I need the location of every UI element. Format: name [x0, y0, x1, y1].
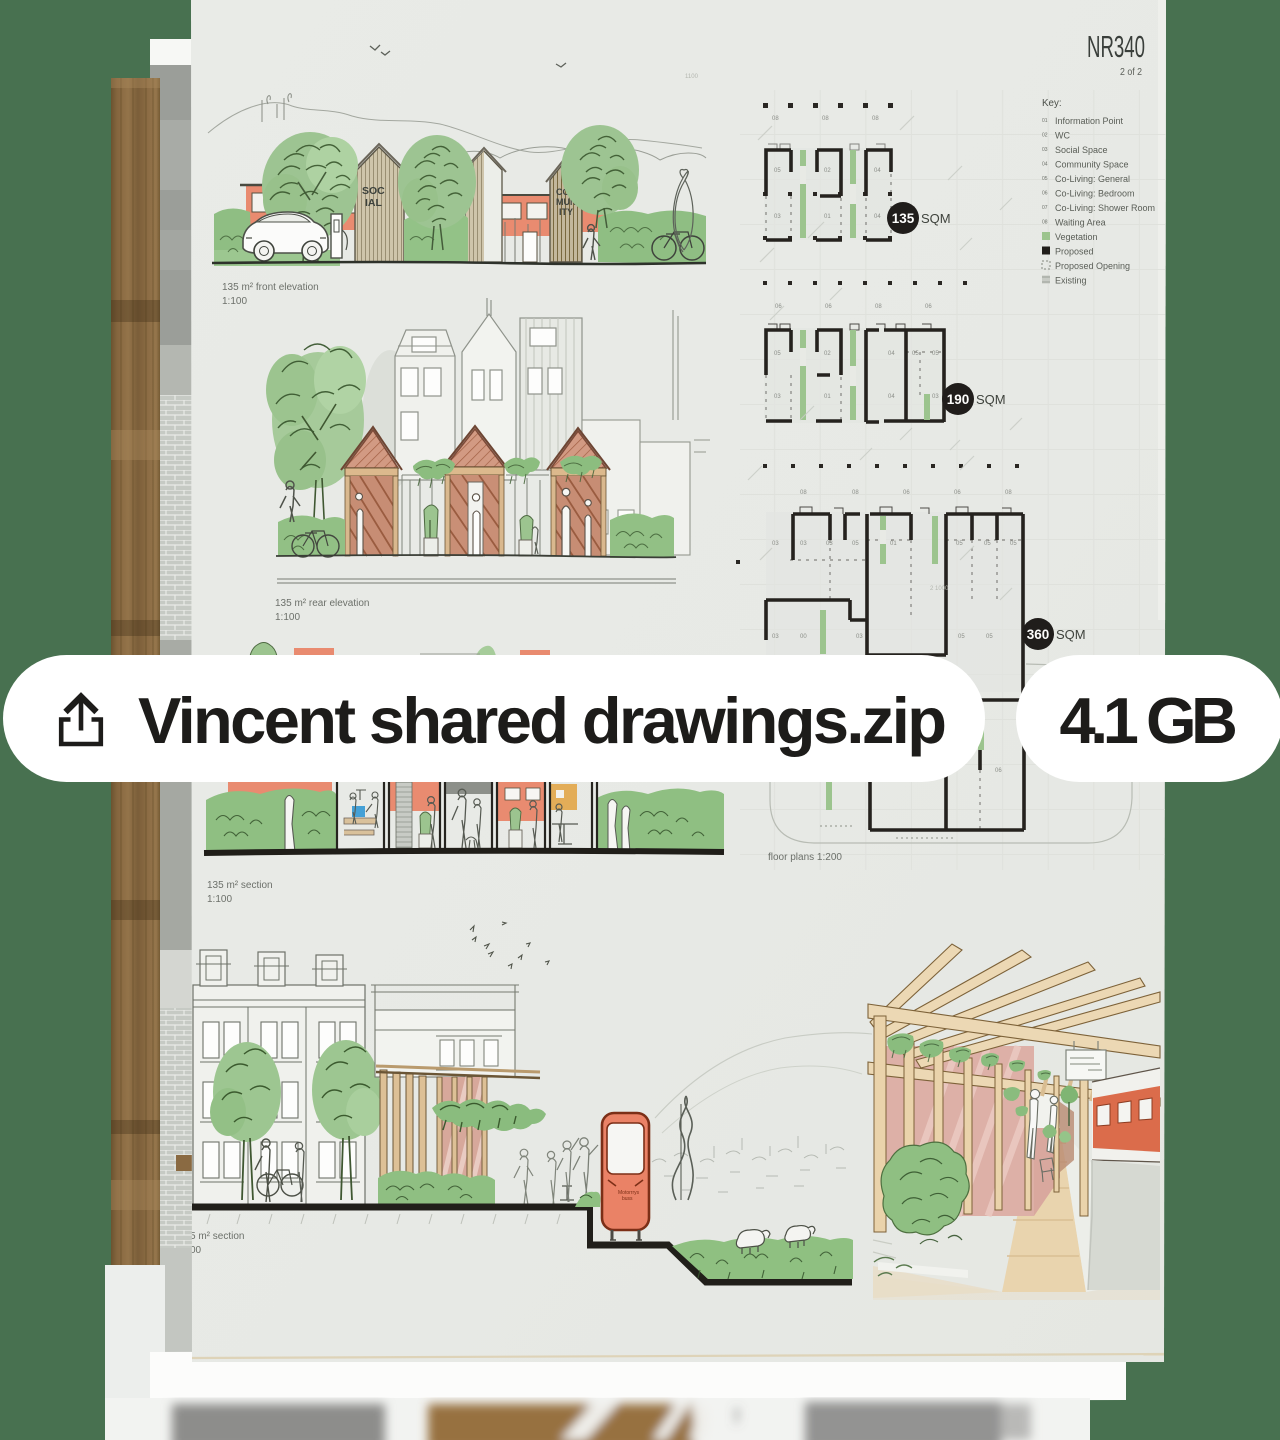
- svg-text:05: 05: [932, 351, 939, 357]
- svg-text:03: 03: [774, 214, 781, 220]
- svg-text:02: 02: [1042, 133, 1048, 139]
- svg-text:03: 03: [826, 541, 833, 547]
- svg-text:03: 03: [856, 634, 863, 640]
- svg-text:135: 135: [892, 211, 915, 226]
- svg-text:05: 05: [1042, 176, 1048, 182]
- svg-text:Information Point: Information Point: [1055, 116, 1124, 126]
- svg-text:08: 08: [772, 116, 779, 122]
- svg-text:ITY: ITY: [559, 207, 573, 217]
- svg-text:1:100: 1:100: [222, 296, 247, 307]
- svg-text:135 m² front elevation: 135 m² front elevation: [222, 282, 319, 293]
- svg-text:08: 08: [875, 304, 882, 310]
- svg-text:08: 08: [822, 116, 829, 122]
- svg-text:Co-Living: Bedroom: Co-Living: Bedroom: [1055, 189, 1135, 199]
- svg-text:04: 04: [1042, 162, 1048, 168]
- svg-text:Key:: Key:: [1042, 98, 1062, 109]
- svg-text:2 1000: 2 1000: [930, 586, 949, 592]
- svg-text:5 m² section: 5 m² section: [190, 1231, 244, 1242]
- svg-text:05: 05: [958, 634, 965, 640]
- svg-text:01: 01: [890, 541, 897, 547]
- svg-text:06: 06: [1042, 191, 1048, 197]
- svg-text:05: 05: [1010, 541, 1017, 547]
- svg-text:06: 06: [825, 304, 832, 310]
- svg-text:06: 06: [903, 490, 910, 496]
- svg-text:Co-Living: Shower Room: Co-Living: Shower Room: [1055, 203, 1155, 213]
- svg-text:SOC: SOC: [362, 185, 385, 197]
- svg-text:02: 02: [824, 168, 831, 174]
- svg-text:08: 08: [872, 116, 879, 122]
- svg-text:Existing: Existing: [1055, 276, 1087, 286]
- svg-text:05: 05: [774, 351, 781, 357]
- svg-text:190: 190: [947, 392, 970, 407]
- svg-text:03: 03: [932, 394, 939, 400]
- svg-text:360: 360: [1027, 627, 1050, 642]
- svg-text:Community Space: Community Space: [1055, 160, 1129, 170]
- svg-text:08: 08: [852, 490, 859, 496]
- svg-text:01: 01: [824, 394, 831, 400]
- svg-text:03: 03: [772, 634, 779, 640]
- svg-text:06: 06: [954, 490, 961, 496]
- svg-text:05: 05: [956, 541, 963, 547]
- svg-text:SQM: SQM: [976, 392, 1006, 407]
- svg-text:135 m² rear elevation: 135 m² rear elevation: [275, 598, 370, 609]
- svg-text:135 m² section: 135 m² section: [207, 880, 273, 891]
- svg-text:08: 08: [800, 490, 807, 496]
- svg-text:08: 08: [1042, 220, 1048, 226]
- svg-text:04: 04: [888, 351, 895, 357]
- svg-text:06: 06: [925, 304, 932, 310]
- svg-text:2 of 2: 2 of 2: [1120, 67, 1142, 78]
- svg-text:04: 04: [874, 168, 881, 174]
- svg-text:07: 07: [1042, 205, 1048, 211]
- svg-text:05: 05: [986, 634, 993, 640]
- svg-text:1:100: 1:100: [207, 894, 232, 905]
- svg-text:floor plans 1:200: floor plans 1:200: [768, 852, 842, 863]
- svg-text:00: 00: [800, 634, 807, 640]
- svg-text:03: 03: [774, 394, 781, 400]
- svg-text:05: 05: [912, 351, 919, 357]
- svg-text:03: 03: [772, 541, 779, 547]
- svg-text:08: 08: [1005, 490, 1012, 496]
- svg-text:06: 06: [995, 768, 1002, 774]
- svg-text:02: 02: [824, 351, 831, 357]
- svg-text:NR340: NR340: [1087, 29, 1145, 64]
- svg-text:Social Space: Social Space: [1055, 145, 1108, 155]
- svg-text:Proposed Opening: Proposed Opening: [1055, 261, 1130, 271]
- svg-text:buss: buss: [622, 1196, 633, 1202]
- svg-text:SQM: SQM: [1056, 627, 1086, 642]
- svg-text:05: 05: [774, 168, 781, 174]
- svg-text:05: 05: [984, 541, 991, 547]
- svg-text:Co-Living: General: Co-Living: General: [1055, 174, 1130, 184]
- svg-text:Vegetation: Vegetation: [1055, 232, 1098, 242]
- svg-text:WC: WC: [1055, 131, 1070, 141]
- svg-text:01: 01: [1042, 118, 1048, 124]
- svg-text:03: 03: [1042, 147, 1048, 153]
- svg-text:Waiting Area: Waiting Area: [1055, 218, 1106, 228]
- svg-text:Proposed: Proposed: [1055, 247, 1094, 257]
- svg-text:05: 05: [852, 541, 859, 547]
- svg-text:01: 01: [824, 214, 831, 220]
- svg-text:1100: 1100: [685, 74, 699, 80]
- svg-text:IAL: IAL: [365, 197, 383, 209]
- svg-text:SQM: SQM: [921, 211, 951, 226]
- svg-text:1:100: 1:100: [275, 612, 300, 623]
- svg-text:04: 04: [888, 394, 895, 400]
- svg-text:04: 04: [874, 214, 881, 220]
- svg-text:03: 03: [800, 541, 807, 547]
